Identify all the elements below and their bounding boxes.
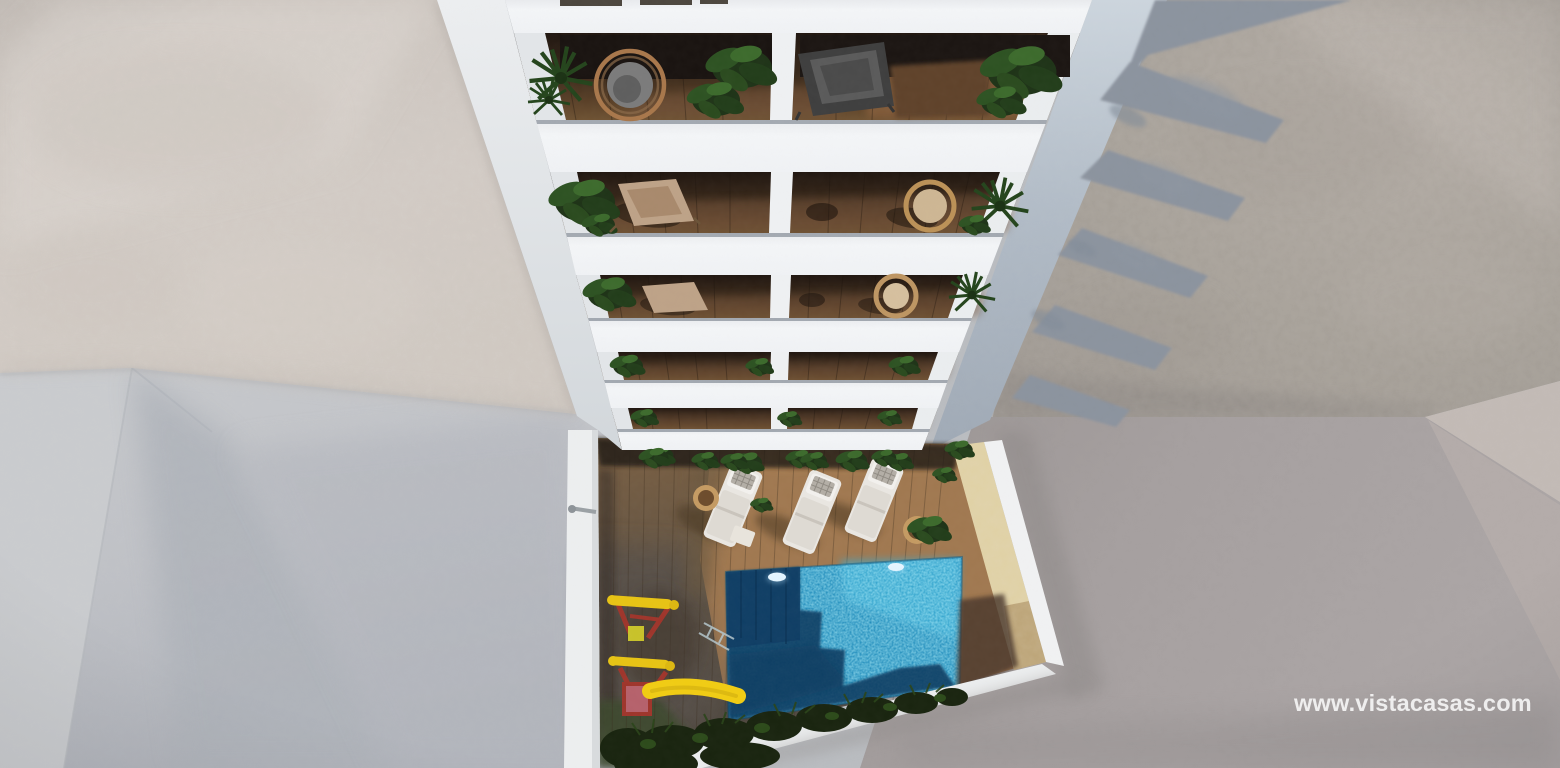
svg-text:www.vistacasas.com: www.vistacasas.com: [1293, 690, 1532, 716]
